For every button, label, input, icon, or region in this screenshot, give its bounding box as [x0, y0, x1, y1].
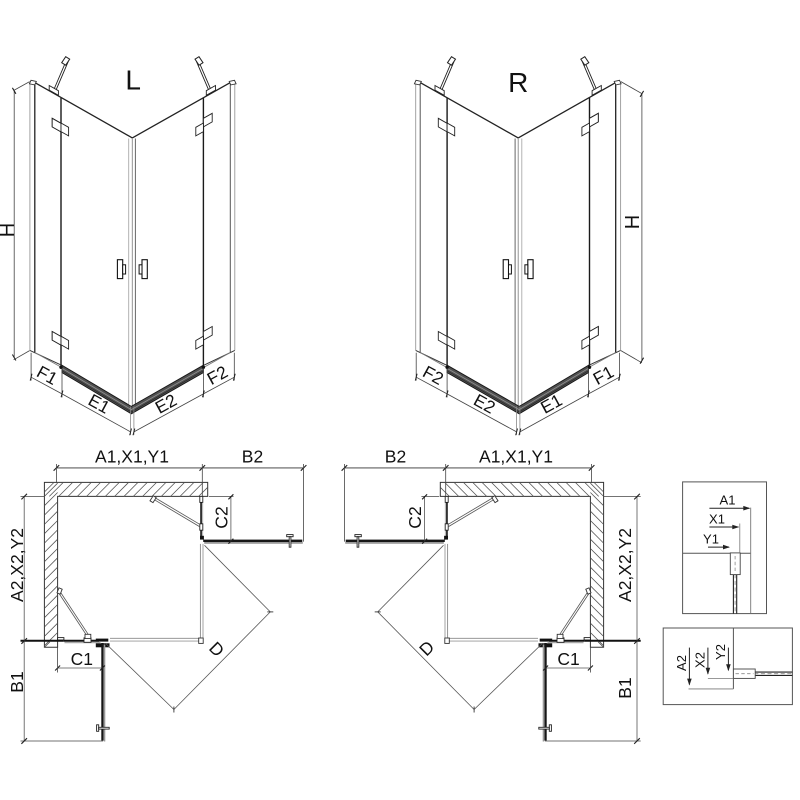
svg-text:A2,X2,Y2: A2,X2,Y2: [615, 528, 635, 602]
svg-text:A1: A1: [720, 493, 736, 508]
svg-text:C2: C2: [405, 506, 425, 528]
svg-text:R: R: [508, 67, 528, 98]
svg-text:B2: B2: [385, 447, 406, 467]
svg-text:A1,X1,Y1: A1,X1,Y1: [479, 447, 553, 467]
svg-text:H: H: [622, 215, 644, 229]
svg-text:L: L: [125, 64, 141, 95]
svg-text:C1: C1: [71, 649, 93, 669]
svg-text:X1: X1: [709, 512, 725, 527]
svg-text:B1: B1: [7, 671, 27, 692]
svg-text:A1,X1,Y1: A1,X1,Y1: [95, 447, 169, 467]
svg-text:X2: X2: [692, 652, 707, 668]
svg-text:A2,X2,Y2: A2,X2,Y2: [7, 528, 27, 602]
svg-text:C2: C2: [212, 506, 232, 528]
svg-text:H: H: [0, 223, 19, 237]
svg-text:C1: C1: [557, 649, 579, 669]
svg-text:B1: B1: [615, 677, 635, 698]
svg-text:A2: A2: [674, 655, 689, 671]
svg-text:Y2: Y2: [713, 644, 728, 660]
svg-text:Y1: Y1: [703, 532, 719, 547]
svg-text:B2: B2: [242, 447, 263, 467]
